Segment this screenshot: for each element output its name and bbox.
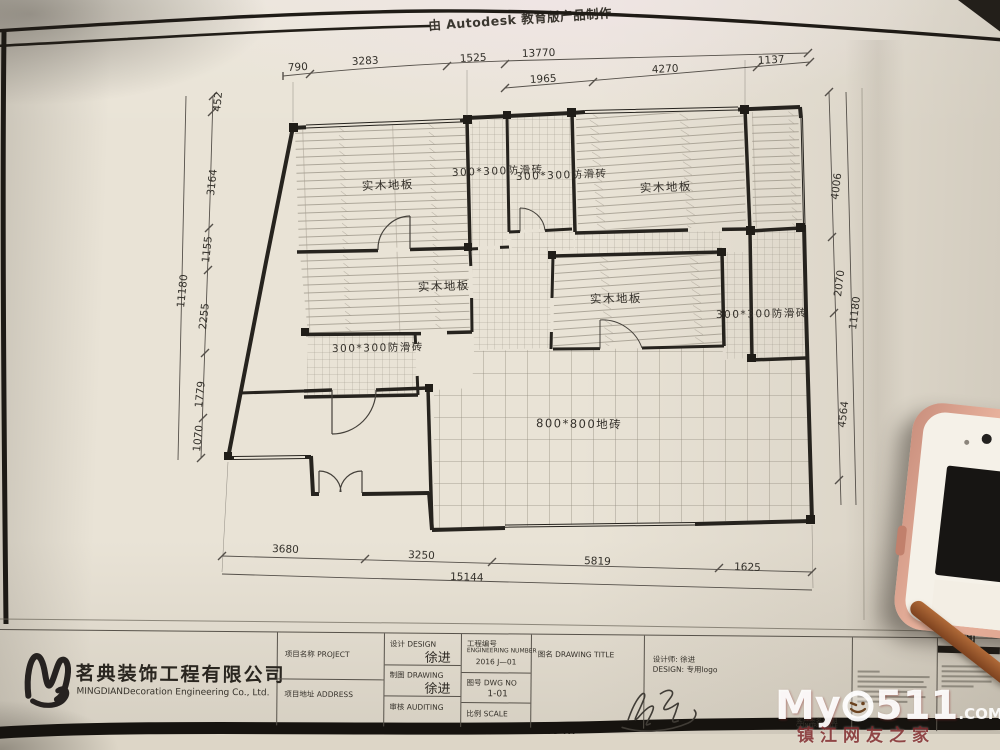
- eng-no-value: 2016 J—01: [476, 657, 517, 666]
- hatch-living: [434, 347, 812, 528]
- phone-screen: [935, 465, 1000, 589]
- project-address-cell: 项目名称 PROJECT 项目地址 ADDRESS: [277, 632, 385, 726]
- watermark-text-part2: 511: [875, 683, 959, 729]
- room-label: 300*300防滑砖: [332, 340, 424, 355]
- dim-label: 1070: [191, 424, 206, 452]
- hatch-strip-upper: [752, 110, 802, 228]
- dim-label: 2070: [832, 269, 847, 297]
- dim-label: 3283: [352, 55, 379, 68]
- dim-label: 2255: [197, 302, 212, 330]
- drawing-title-label: 图名 DRAWING TITLE: [538, 649, 615, 661]
- room-label: 实木地板: [590, 291, 642, 306]
- design-logo-label: DESIGN: 专用logo: [653, 664, 718, 676]
- draft-value: 徐进: [424, 678, 450, 697]
- dim-label: 4564: [836, 400, 851, 428]
- dim-label: 1137: [758, 54, 785, 67]
- dim-label: 1525: [460, 52, 487, 65]
- hatch-bath-right: [753, 229, 805, 358]
- dim-label: 790: [288, 61, 309, 74]
- project-label: 项目名称 PROJECT: [285, 648, 350, 660]
- dim-label: 13770: [522, 47, 556, 60]
- scale-label: 比例 SCALE: [466, 708, 508, 719]
- dim-label: 5819: [584, 555, 611, 568]
- photo-of-floor-plan: 实木地板 300*300防滑砖 300*300防滑砖 实木地板 实木地板 实木地…: [0, 0, 1000, 750]
- dim-label: 1155: [200, 235, 215, 263]
- watermark-text-part1: My: [775, 683, 841, 729]
- dim-label: 1965: [530, 73, 557, 86]
- dim-label: 3164: [205, 168, 220, 196]
- company-name-en: MINGDIANDecoration Engineering Co., Ltd.: [76, 687, 269, 699]
- site-watermark: My 511.COM 镇江网友之家: [775, 686, 1000, 745]
- dim-label: 11180: [847, 296, 863, 331]
- dim-label: 11180: [175, 274, 190, 308]
- dim-label: 4270: [652, 63, 679, 76]
- design-value: 徐进: [425, 647, 451, 666]
- hatch-corridor: [472, 247, 551, 350]
- company-cell: 茗典装饰工程有限公司 MINGDIANDecoration Engineerin…: [0, 630, 278, 725]
- dim-label: 1625: [734, 561, 761, 574]
- dim-label: 4006: [829, 172, 844, 200]
- dwg-no-value: 1-01: [487, 689, 508, 699]
- dim-label: 3680: [272, 543, 299, 556]
- room-label: 实木地板: [418, 278, 470, 294]
- room-label: 300*300防滑砖: [716, 306, 808, 321]
- room-label: 800*800地砖: [536, 416, 622, 432]
- dim-label: 3250: [408, 549, 435, 562]
- dim-label: 452: [211, 91, 225, 112]
- room-label: 实木地板: [362, 177, 414, 193]
- room-label: 实木地板: [640, 179, 692, 195]
- audit-label: 审核 AUDITING: [389, 701, 443, 712]
- eng-no-label-en: ENGINEERING NUMBER: [467, 647, 537, 655]
- dim-label: 15144: [450, 571, 484, 584]
- address-label: 项目地址 ADDRESS: [284, 688, 353, 700]
- watermark-tagline: 镇江网友之家: [797, 728, 1000, 745]
- handwritten-signature: [612, 677, 704, 734]
- numbers-cell: 工程编号 ENGINEERING NUMBER 2016 J—01 图号 DWG…: [461, 634, 532, 728]
- company-logo-icon: [21, 646, 74, 712]
- hatch-bath-a: [470, 118, 507, 247]
- dim-label: 1779: [193, 380, 208, 408]
- watermark-com: .COM: [958, 705, 1000, 723]
- dwg-no-label: 图号 DWG NO: [467, 677, 517, 688]
- company-name-cn: 茗典装饰工程有限公司: [76, 659, 286, 688]
- smiley-icon: [841, 688, 875, 722]
- design-draft-audit-cell: 设计 DESIGN 徐进 制图 DRAWING 徐进 审核 AUDITING: [384, 633, 462, 727]
